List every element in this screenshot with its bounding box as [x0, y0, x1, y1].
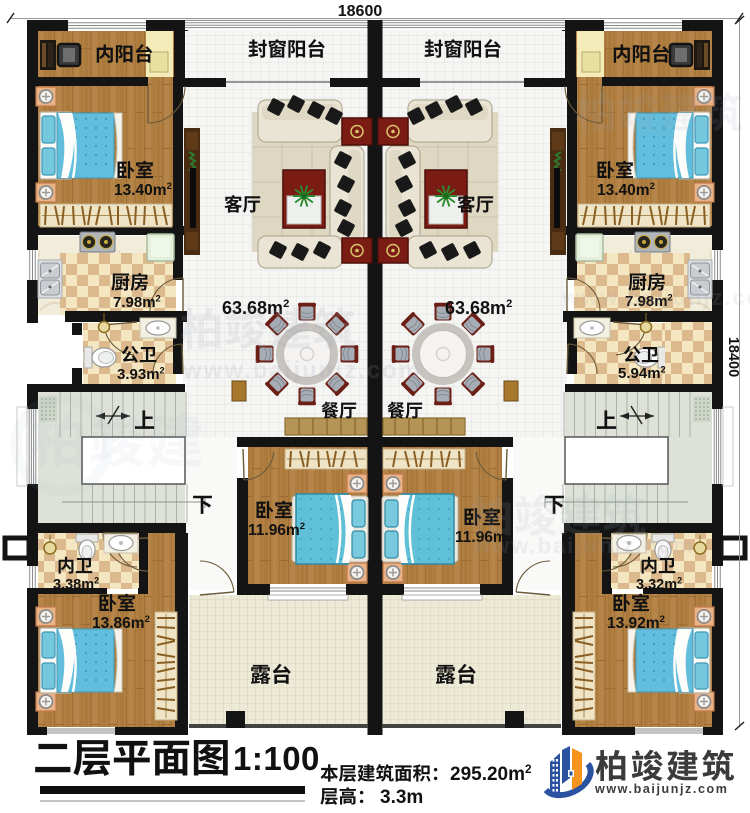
- svg-text:3.3m: 3.3m: [380, 787, 423, 808]
- svg-text:13.40m2: 13.40m2: [597, 181, 655, 199]
- svg-text:3.32m2: 3.32m2: [636, 575, 682, 593]
- svg-text:11.96m2: 11.96m2: [248, 521, 305, 539]
- svg-text:13.86m2: 13.86m2: [92, 614, 150, 632]
- svg-text:3.93m2: 3.93m2: [117, 365, 165, 383]
- svg-text:www.baijunjz.com: www.baijunjz.com: [472, 533, 695, 558]
- svg-text:7.98m2: 7.98m2: [113, 293, 161, 311]
- svg-text:www.baijunjz.com: www.baijunjz.com: [182, 357, 422, 384]
- svg-text:www.baijunjz.com: www.baijunjz.com: [594, 782, 728, 796]
- svg-text:1:100: 1:100: [233, 740, 320, 777]
- svg-text:18400: 18400: [725, 337, 741, 377]
- svg-text:13.92m2: 13.92m2: [607, 614, 665, 632]
- svg-text:5.94m2: 5.94m2: [618, 364, 666, 382]
- svg-text:13.40m2: 13.40m2: [114, 181, 172, 199]
- svg-text:18600: 18600: [338, 3, 383, 20]
- svg-text:295.20m2: 295.20m2: [450, 763, 532, 785]
- svg-text:3.38m2: 3.38m2: [53, 575, 99, 593]
- svg-text:63.68m2: 63.68m2: [445, 298, 512, 318]
- svg-text:www.baijunjz.com: www.baijunjz.com: [561, 285, 750, 310]
